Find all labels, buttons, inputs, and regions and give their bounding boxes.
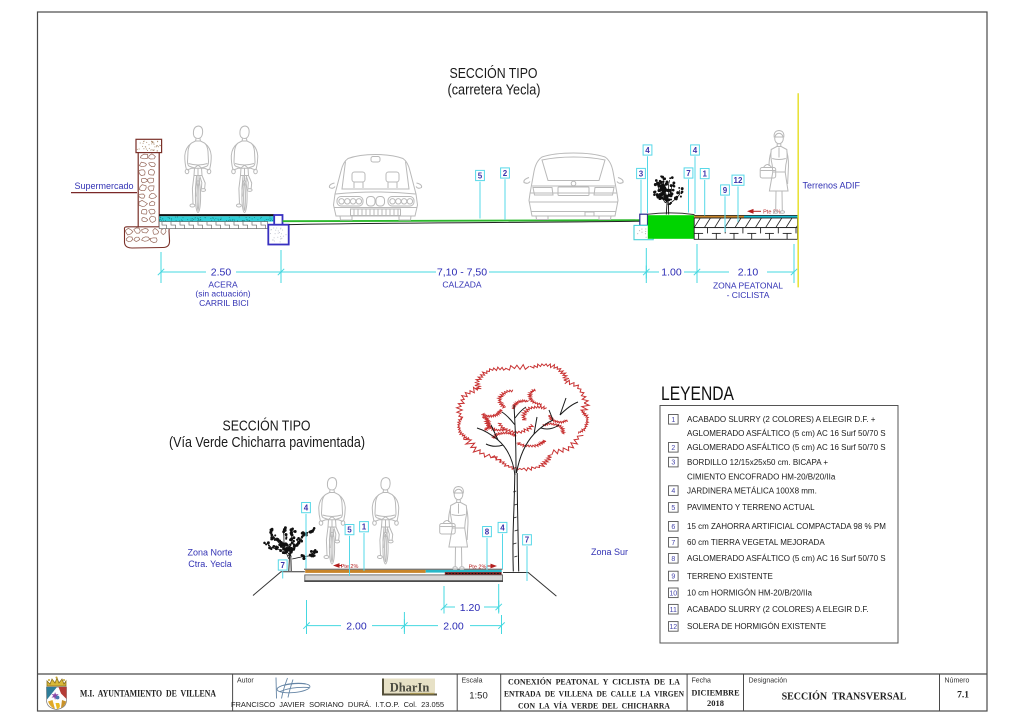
svg-text:Terrenos ADIF: Terrenos ADIF: [803, 181, 861, 191]
svg-text:1: 1: [671, 417, 675, 424]
svg-text:1.20: 1.20: [460, 602, 481, 614]
svg-text:7: 7: [280, 561, 285, 570]
svg-text:SECCIÓN TIPO: SECCIÓN TIPO: [450, 65, 538, 82]
svg-text:Zona Sur: Zona Sur: [591, 547, 628, 557]
svg-text:7: 7: [525, 536, 530, 545]
svg-text:5: 5: [478, 171, 483, 180]
svg-text:7: 7: [686, 169, 691, 178]
svg-text:10: 10: [669, 590, 677, 597]
svg-text:7,10 - 7,50: 7,10 - 7,50: [437, 267, 487, 279]
svg-text:AGLOMERADO ASFÁLTICO (5 cm) AC: AGLOMERADO ASFÁLTICO (5 cm) AC 16 Surf 5…: [687, 554, 886, 563]
svg-text:2018: 2018: [707, 698, 724, 708]
svg-text:Zona Norte: Zona Norte: [187, 548, 232, 558]
svg-text:2: 2: [503, 169, 508, 178]
svg-text:12: 12: [734, 176, 743, 185]
svg-text:Número: Número: [945, 678, 970, 685]
svg-text:JARDINERA METÁLICA 100X8 mm.: JARDINERA METÁLICA 100X8 mm.: [687, 486, 817, 495]
svg-text:1.00: 1.00: [661, 267, 682, 279]
svg-text:1:50: 1:50: [469, 691, 488, 702]
svg-text:4: 4: [671, 488, 675, 495]
svg-text:2.00: 2.00: [443, 620, 464, 632]
svg-text:SECCIÓN TRANSVERSAL: SECCIÓN TRANSVERSAL: [782, 691, 907, 703]
svg-text:- CICLISTA: - CICLISTA: [727, 290, 770, 300]
svg-text:5: 5: [347, 526, 352, 535]
svg-text:CALZADA: CALZADA: [442, 279, 482, 289]
svg-text:7.1: 7.1: [957, 691, 969, 701]
svg-text:3: 3: [671, 460, 675, 467]
svg-text:8: 8: [485, 528, 490, 537]
svg-text:(carretera Yecla): (carretera Yecla): [448, 83, 541, 99]
svg-text:2: 2: [671, 445, 675, 452]
svg-text:CARRIL BICI: CARRIL BICI: [199, 298, 249, 308]
svg-text:1: 1: [702, 170, 707, 179]
svg-text:11: 11: [670, 607, 677, 614]
svg-text:9: 9: [723, 186, 728, 195]
svg-text:ACABADO SLURRY (2 COLORES) A E: ACABADO SLURRY (2 COLORES) A ELEGIR D.F.: [687, 605, 869, 614]
svg-text:7: 7: [671, 540, 675, 547]
svg-text:4: 4: [500, 523, 505, 532]
svg-text:4: 4: [693, 146, 698, 155]
svg-text:12: 12: [669, 624, 677, 631]
svg-text:Autor: Autor: [237, 678, 254, 685]
svg-text:2.10: 2.10: [738, 267, 759, 279]
svg-text:6: 6: [671, 524, 675, 531]
svg-text:1: 1: [362, 523, 367, 532]
svg-text:BORDILLO 12/15x25x50 cm. BICAP: BORDILLO 12/15x25x50 cm. BICAPA +: [687, 458, 828, 467]
svg-text:AGLOMERADO ASFÁLTICO (5 cm) AC: AGLOMERADO ASFÁLTICO (5 cm) AC 16 Surf 5…: [687, 429, 886, 438]
svg-text:SOLERA DE HORMIGÓN EXISTENTE: SOLERA DE HORMIGÓN EXISTENTE: [687, 622, 826, 631]
svg-text:ZONA PEATONAL: ZONA PEATONAL: [713, 280, 783, 290]
svg-text:Fecha: Fecha: [692, 678, 712, 685]
svg-text:CONEXIÓN PEATONAL Y CICLIST: CONEXIÓN PEATONAL Y CICLISTA DE LA: [508, 677, 680, 687]
svg-text:PAVIMENTO Y TERRENO ACTUAL: PAVIMENTO Y TERRENO ACTUAL: [687, 503, 815, 512]
svg-text:FRANCISCO JAVIER SORIANO DU: FRANCISCO JAVIER SORIANO DURÁ. I.T.O.P. …: [231, 700, 444, 709]
svg-text:Pte 2%: Pte 2%: [469, 564, 487, 570]
svg-text:TERRENO EXISTENTE: TERRENO EXISTENTE: [687, 572, 773, 581]
svg-text:SECCIÓN TIPO: SECCIÓN TIPO: [223, 418, 311, 435]
svg-text:4: 4: [645, 146, 650, 155]
svg-text:DharIn: DharIn: [390, 681, 430, 695]
svg-text:5: 5: [671, 505, 675, 512]
svg-text:(sin actuación): (sin actuación): [195, 289, 250, 299]
svg-text:CON LA VÍA VERDE DEL CHIC: CON LA VÍA VERDE DEL CHICHARRA: [518, 701, 670, 711]
svg-text:ENTRADA DE VILLENA DE CALL: ENTRADA DE VILLENA DE CALLE LA VIRGEN: [504, 690, 684, 699]
svg-text:M.I. AYUNTAMIENTO DE VILLEN: M.I. AYUNTAMIENTO DE VILLENA: [80, 689, 216, 699]
svg-text:3: 3: [639, 169, 644, 178]
svg-text:LEYENDA: LEYENDA: [661, 383, 734, 405]
svg-text:DICIEMBRE: DICIEMBRE: [692, 688, 740, 698]
svg-text:2.50: 2.50: [211, 267, 232, 279]
svg-text:8: 8: [671, 556, 675, 563]
svg-text:10 cm HORMIGÓN HM-20/B/20/IIa: 10 cm HORMIGÓN HM-20/B/20/IIa: [687, 589, 812, 598]
svg-text:ACABADO SLURRY (2 COLORES) A E: ACABADO SLURRY (2 COLORES) A ELEGIR D.F.…: [687, 415, 876, 424]
svg-text:Designación: Designación: [749, 678, 788, 685]
svg-text:2.00: 2.00: [346, 620, 367, 632]
svg-text:Escala: Escala: [462, 678, 483, 685]
svg-text:4: 4: [304, 504, 309, 513]
svg-text:Ctra. Yecla: Ctra. Yecla: [188, 559, 232, 569]
svg-text:15 cm ZAHORRA ARTIFICIAL COMPA: 15 cm ZAHORRA ARTIFICIAL COMPACTADA 98 %…: [687, 522, 886, 531]
svg-text:CIMIENTO ENCOFRADO HM-20/B/20/: CIMIENTO ENCOFRADO HM-20/B/20/IIa: [687, 472, 836, 481]
svg-text:9: 9: [671, 574, 675, 581]
svg-text:Supermercado: Supermercado: [74, 181, 133, 191]
svg-text:AGLOMERADO ASFÁLTICO (5 cm) AC: AGLOMERADO ASFÁLTICO (5 cm) AC 16 Surf 5…: [687, 443, 886, 452]
svg-text:Pte 2%: Pte 2%: [763, 210, 781, 216]
svg-text:(Vía Verde Chicharra pavimenta: (Vía Verde Chicharra pavimentada): [169, 435, 365, 451]
svg-text:60 cm TIERRA VEGETAL MEJORADA: 60 cm TIERRA VEGETAL MEJORADA: [687, 538, 825, 547]
